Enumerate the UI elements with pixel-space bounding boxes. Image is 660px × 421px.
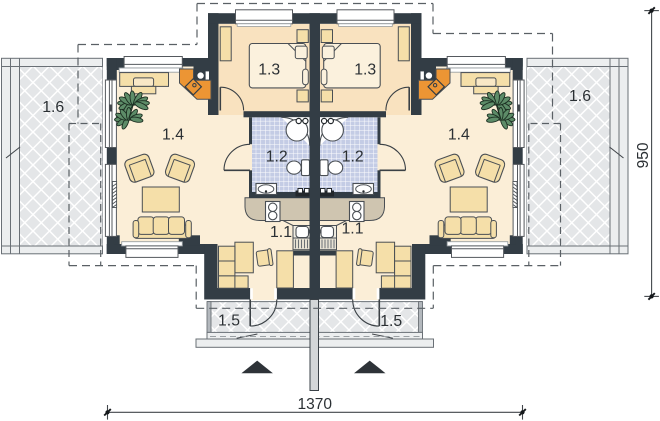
svg-text:950: 950 xyxy=(635,142,652,168)
svg-text:1.5: 1.5 xyxy=(218,313,240,330)
svg-text:1.3: 1.3 xyxy=(354,61,376,78)
svg-text:1.2: 1.2 xyxy=(342,149,364,166)
svg-text:1.3: 1.3 xyxy=(258,61,280,78)
svg-text:1.6: 1.6 xyxy=(42,99,64,116)
svg-text:1.4: 1.4 xyxy=(162,127,184,144)
svg-text:1.2: 1.2 xyxy=(266,149,288,166)
svg-text:1.1: 1.1 xyxy=(270,224,292,241)
svg-text:1.5: 1.5 xyxy=(380,313,402,330)
svg-text:1.1: 1.1 xyxy=(342,221,364,238)
svg-text:1.4: 1.4 xyxy=(448,127,470,144)
svg-text:1.6: 1.6 xyxy=(569,88,591,105)
svg-text:1370: 1370 xyxy=(297,396,332,413)
